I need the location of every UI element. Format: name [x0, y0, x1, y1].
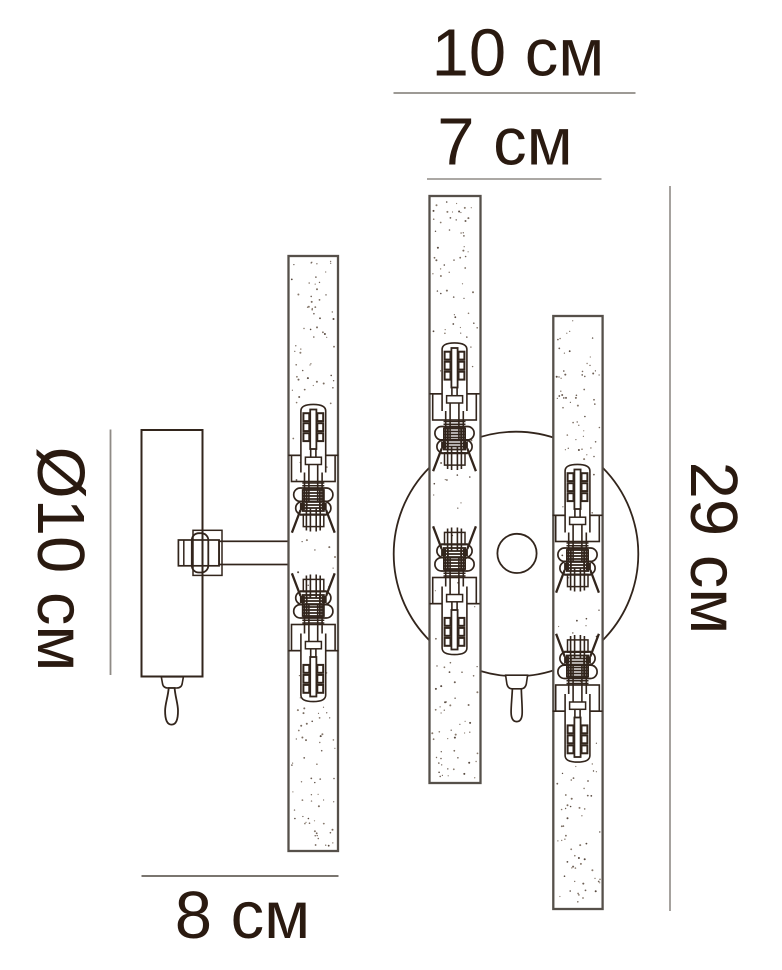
svg-text:Ø10 см: Ø10 см — [23, 447, 98, 672]
svg-text:7 см: 7 см — [437, 105, 572, 180]
svg-text:29 см: 29 см — [676, 462, 751, 635]
svg-text:8 см: 8 см — [175, 878, 310, 953]
svg-text:10 см: 10 см — [432, 16, 605, 91]
